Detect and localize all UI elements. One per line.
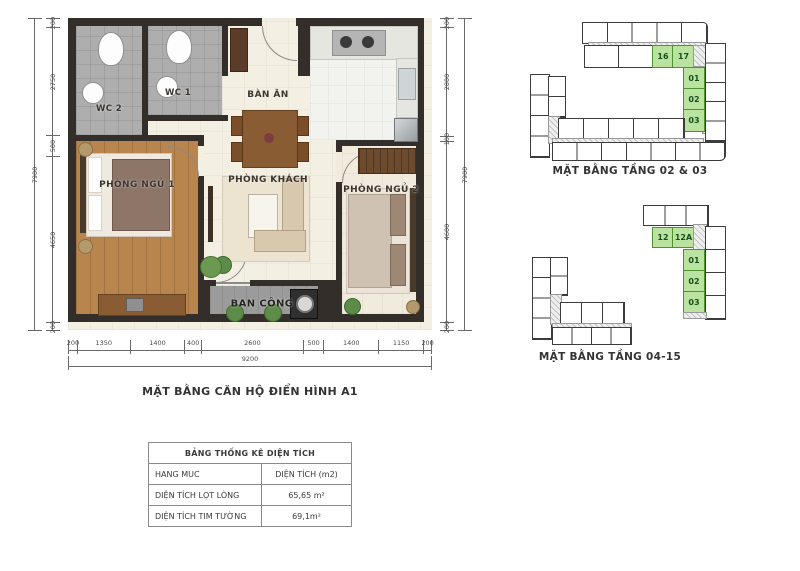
header-area: DIỆN TÍCH (m2) (262, 464, 352, 485)
floorplan-sheet: WC 2 WC 1 BÀN ĂN PHÒNG NGỦ 1 PHÒNG KHÁCH… (0, 0, 800, 571)
unit-cells (548, 76, 566, 118)
dim-value: 9200 (242, 355, 259, 363)
dim-value: 400 (187, 339, 199, 347)
wc2-toilet (98, 32, 124, 66)
outer-wall-left (68, 18, 76, 322)
dim-value: 200 (443, 320, 451, 332)
unit-cells (552, 327, 632, 345)
wall-wc-divider (142, 26, 148, 141)
row-item: DIỆN TÍCH LỌT LÒNG (149, 485, 262, 506)
row-area: 65,65 m² (262, 485, 352, 506)
sofa-chaise (254, 230, 306, 252)
dim-value: 2600 (244, 339, 261, 347)
shoe-cabinet (230, 28, 248, 72)
living-label: PHÒNG KHÁCH (228, 175, 308, 185)
plant (200, 256, 222, 278)
dim-bottom-segments: 200 1350 1400 400 2600 500 1400 1150 200 (68, 340, 432, 354)
dim-value: 4650 (49, 231, 57, 248)
bed2-pillow (390, 244, 406, 286)
unit-cells (584, 45, 654, 68)
dim-value: 7900 (31, 166, 39, 183)
wc2-label: WC 2 (96, 104, 122, 114)
row-area: 69,1m² (262, 506, 352, 527)
dim-value: 200 (49, 320, 57, 332)
dim-value: 4600 (443, 224, 451, 241)
unit-cells (532, 257, 552, 340)
dim-value: 200 (421, 339, 433, 347)
stove-burner-2 (362, 36, 374, 48)
wardrobe (358, 148, 416, 174)
highlight-unit-12: 12 (652, 227, 674, 248)
dim-value: 7900 (461, 166, 469, 183)
highlight-unit-01: 01 (683, 67, 705, 90)
highlight-unit-01: 01 (683, 249, 705, 272)
dim-value: 1400 (343, 339, 360, 347)
washing-machine-door (296, 295, 314, 313)
wall-entry (222, 26, 228, 76)
dim-value: 500 (307, 339, 319, 347)
plan-caption: MẶT BẰNG CĂN HỘ ĐIỂN HÌNH A1 (142, 385, 358, 398)
header-item: HANG MUC (149, 464, 262, 485)
dim-value: 2750 (49, 73, 57, 90)
dining-chair (231, 142, 243, 162)
balcony-label: BAN CÔNG (231, 299, 294, 310)
keyplan-caption-02-03: MẶT BẰNG TẦNG 02 & 03 (553, 165, 708, 177)
dim-right-segments: 200 2800 100 4600 200 (440, 18, 454, 331)
tv-cabinet (208, 186, 213, 242)
table-title-row: BẢNG THỐNG KÊ DIỆN TÍCH (149, 443, 352, 464)
laptop (126, 298, 144, 312)
wall-kitchen-left (298, 26, 310, 76)
area-statistics-table: BẢNG THỐNG KÊ DIỆN TÍCH HANG MUC DIỆN TÍ… (148, 442, 352, 527)
highlight-unit-02: 02 (683, 270, 705, 293)
kitchen-sink (398, 68, 416, 100)
dim-left-total: 7900 (28, 18, 42, 331)
wall-balcony-top-b (250, 280, 318, 286)
bed1-pillow (88, 195, 102, 231)
unit-cells (582, 22, 708, 44)
dining-chair (231, 116, 243, 136)
highlight-unit-12A: 12A (672, 227, 695, 248)
unit-cells (558, 118, 685, 140)
dim-right-total: 7900 (458, 18, 472, 331)
unit-cells (550, 257, 568, 296)
table-row: DIỆN TÍCH TIM TƯỜNG 69,1m² (149, 506, 352, 527)
highlight-unit-16: 16 (652, 45, 674, 68)
bedroom1-door-gap (198, 146, 204, 176)
bedroom2-door-gap (336, 152, 342, 182)
wall-balcony-right-block (318, 280, 342, 322)
wc1-toilet (166, 30, 192, 64)
keyplan-caption-04-15: MẶT BẰNG TẦNG 04-15 (539, 351, 681, 363)
row-item: DIỆN TÍCH TIM TƯỜNG (149, 506, 262, 527)
dim-value: 1350 (95, 339, 112, 347)
highlight-unit-17: 17 (672, 45, 695, 68)
dim-value: 1150 (393, 339, 410, 347)
table-row: DIỆN TÍCH LỌT LÒNG 65,65 m² (149, 485, 352, 506)
wall-under-wc1 (148, 115, 228, 121)
unit-cells (705, 43, 726, 142)
dim-bottom-total: 9200 (68, 356, 432, 370)
table-centerpiece (264, 133, 274, 143)
outer-wall-top-left (68, 18, 262, 26)
wc1-label: WC 1 (165, 88, 191, 98)
highlight-unit-02: 02 (683, 88, 705, 111)
highlight-unit-03: 03 (683, 109, 705, 132)
plant (344, 298, 361, 315)
bed2-blanket (348, 194, 392, 288)
unit-cells (552, 142, 726, 161)
bedroom2-label: PHÒNG NGỦ 2 (343, 185, 419, 195)
fridge (394, 118, 418, 142)
corridor-hatch (683, 312, 707, 319)
dining-label: BÀN ĂN (247, 90, 288, 100)
unit-cells (530, 74, 550, 158)
highlight-unit-03: 03 (683, 291, 705, 314)
unit-cells (643, 205, 709, 226)
table-header-row: HANG MUC DIỆN TÍCH (m2) (149, 464, 352, 485)
bed1-side-table (78, 142, 93, 157)
dim-left-segments: 200 2750 500 4650 200 (46, 18, 60, 331)
table-title: BẢNG THỐNG KÊ DIỆN TÍCH (149, 443, 352, 464)
dining-chair (297, 116, 309, 136)
bed1-side-table (78, 239, 93, 254)
dim-value: 500 (49, 140, 57, 152)
entry-door-arc (262, 26, 297, 61)
unit-cells (560, 302, 625, 325)
dining-chair (297, 142, 309, 162)
wc2-sink (82, 82, 104, 104)
wall-balcony-left (204, 280, 210, 322)
dim-value: 1400 (149, 339, 166, 347)
bed2-pillow (390, 194, 406, 236)
bed1-blanket (112, 159, 170, 231)
outer-wall-top-right (296, 18, 424, 26)
bedroom1-label: PHÒNG NGỦ 1 (99, 180, 175, 190)
apartment-plan: WC 2 WC 1 BÀN ĂN PHÒNG NGỦ 1 PHÒNG KHÁCH… (68, 18, 432, 330)
dim-value: 2800 (443, 74, 451, 91)
stove-burner-1 (340, 36, 352, 48)
bed2-side-table (406, 300, 420, 314)
wall-bedroom1-top (76, 135, 204, 141)
unit-cells (705, 226, 726, 320)
